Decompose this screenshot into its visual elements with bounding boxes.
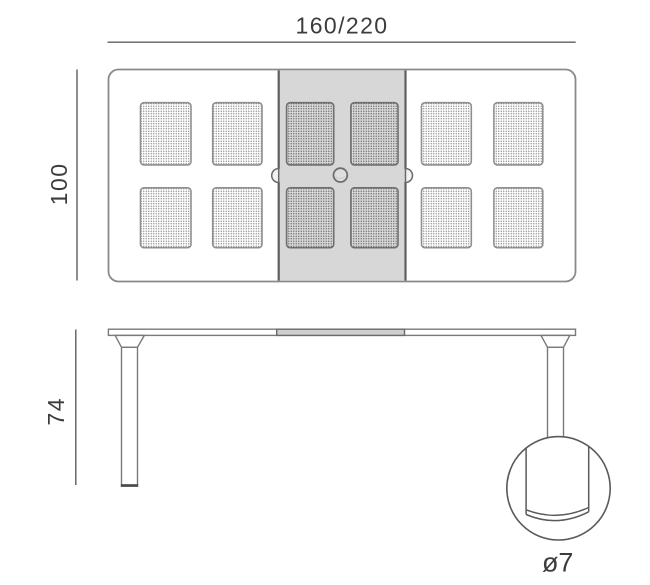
svg-text:74: 74 [43,397,69,425]
svg-text:100: 100 [46,162,72,205]
svg-text:ø7: ø7 [542,548,574,578]
svg-text:160/220: 160/220 [296,13,389,39]
